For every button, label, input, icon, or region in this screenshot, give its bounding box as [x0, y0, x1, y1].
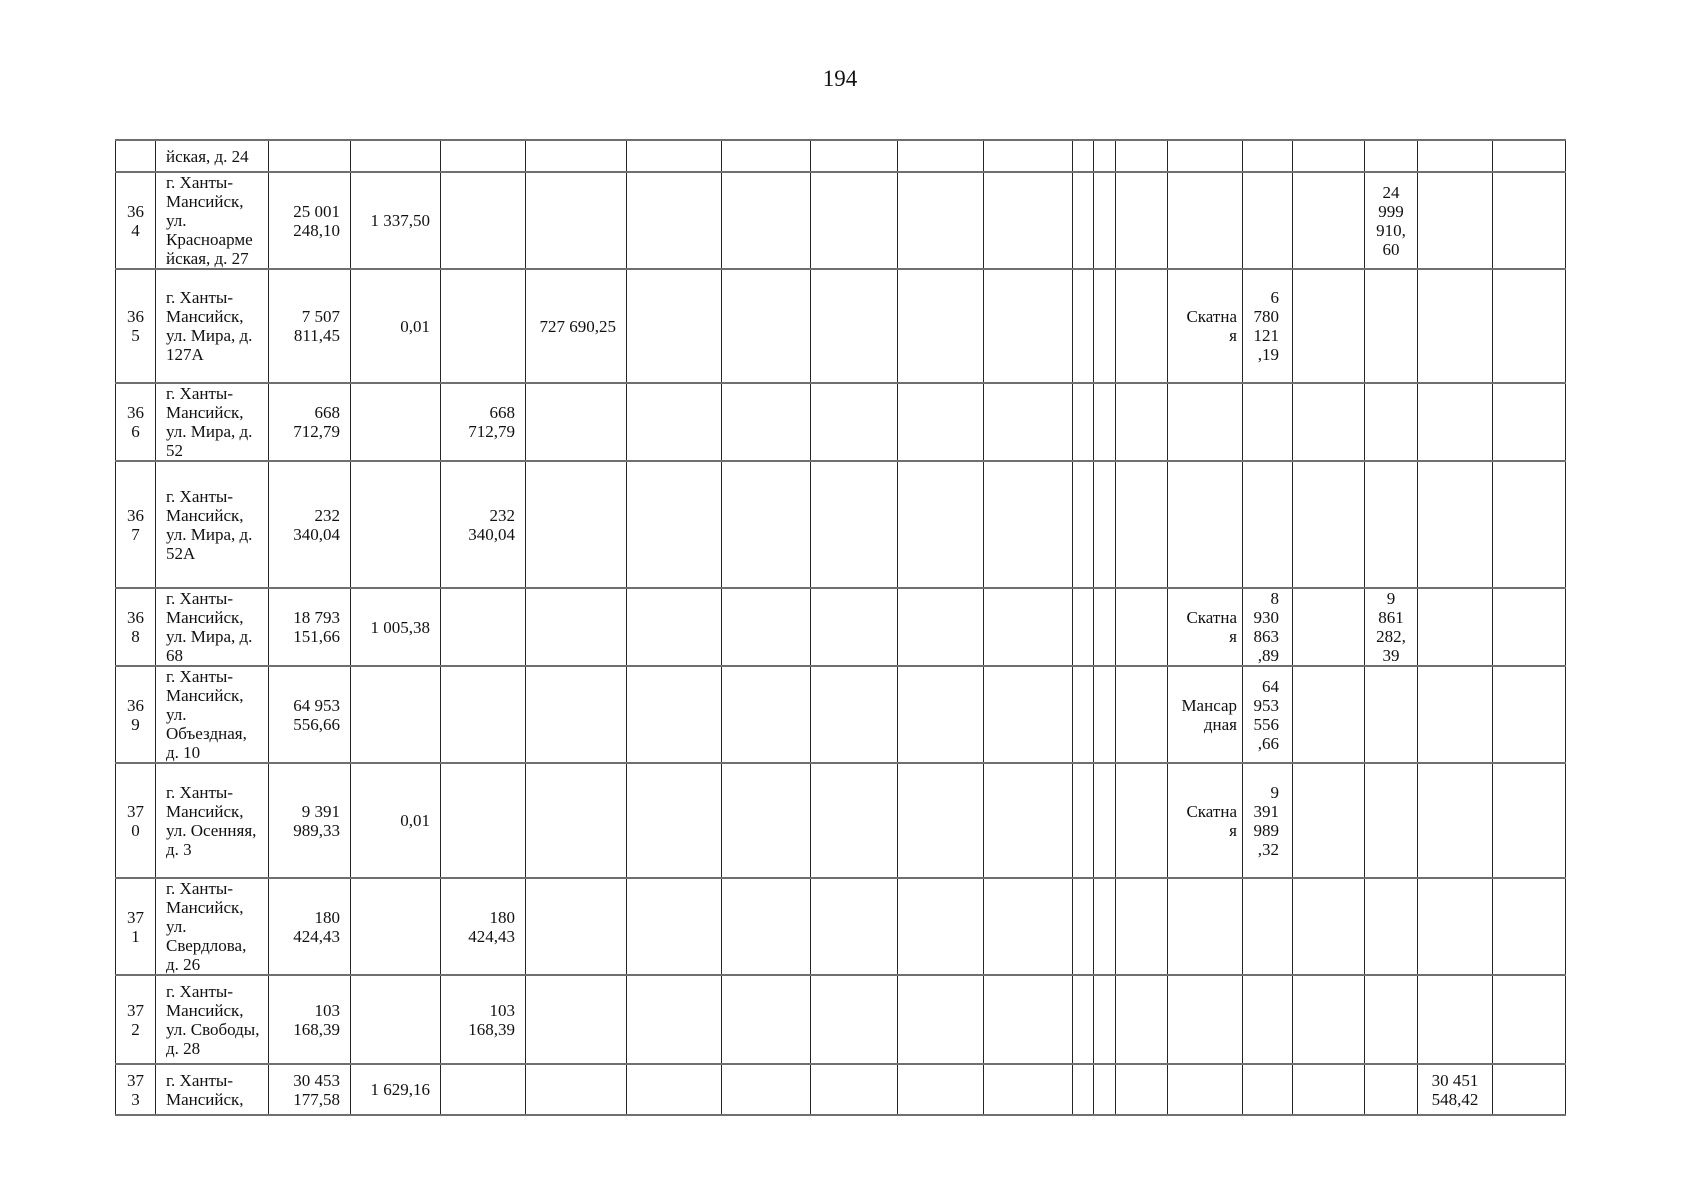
table-cell — [984, 172, 1073, 269]
table-cell — [1073, 878, 1094, 975]
table-cell — [1094, 588, 1116, 666]
table-cell — [1493, 588, 1566, 666]
table-cell — [1094, 763, 1116, 878]
table-cell: 30 453 177,58 — [269, 1064, 351, 1115]
table-cell: 36 6 — [116, 383, 156, 461]
table-cell — [526, 588, 627, 666]
table-cell — [1293, 878, 1365, 975]
table-cell: 180 424,43 — [269, 878, 351, 975]
table-cell — [1094, 383, 1116, 461]
table-cell — [811, 878, 898, 975]
table-cell — [898, 975, 984, 1064]
table-cell: 24 999 910, 60 — [1365, 172, 1418, 269]
table-cell — [1365, 878, 1418, 975]
table-cell — [1243, 461, 1293, 588]
table-cell: 0,01 — [351, 269, 441, 383]
table-cell — [722, 172, 811, 269]
data-table: йская, д. 2436 4г. Ханты- Мансийск, ул. … — [115, 139, 1566, 1116]
table-cell — [984, 763, 1073, 878]
table-cell — [627, 1064, 722, 1115]
table-cell — [269, 140, 351, 172]
table-cell — [441, 140, 526, 172]
table-cell: 36 7 — [116, 461, 156, 588]
table-cell — [441, 763, 526, 878]
table-cell — [811, 172, 898, 269]
table-cell — [722, 140, 811, 172]
table-cell — [722, 763, 811, 878]
table-cell — [1168, 383, 1243, 461]
table-cell — [722, 878, 811, 975]
table-cell — [441, 1064, 526, 1115]
table-cell: 18 793 151,66 — [269, 588, 351, 666]
table-cell — [1168, 172, 1243, 269]
table-cell — [811, 763, 898, 878]
table-cell — [1293, 975, 1365, 1064]
table-cell: 36 8 — [116, 588, 156, 666]
table-cell — [811, 975, 898, 1064]
table-cell — [1365, 269, 1418, 383]
table-cell: 37 1 — [116, 878, 156, 975]
table-cell: 668 712,79 — [269, 383, 351, 461]
table-cell — [526, 878, 627, 975]
table-cell — [898, 763, 984, 878]
table-cell — [1418, 763, 1493, 878]
table-cell — [1493, 975, 1566, 1064]
table-cell — [1493, 461, 1566, 588]
table-cell: Скатна я — [1168, 269, 1243, 383]
table-cell — [1073, 763, 1094, 878]
table-cell — [984, 975, 1073, 1064]
table-cell — [1073, 975, 1094, 1064]
table-cell — [1168, 461, 1243, 588]
table-cell — [1365, 383, 1418, 461]
table-cell: 9 391 989 ,32 — [1243, 763, 1293, 878]
table-cell — [898, 172, 984, 269]
table-cell — [1094, 269, 1116, 383]
table-cell: г. Ханты- Мансийск, ул. Красноарме йская… — [156, 172, 269, 269]
table-row: 36 7г. Ханты- Мансийск, ул. Мира, д. 52А… — [116, 461, 1566, 588]
table-cell — [1116, 666, 1168, 763]
table-cell: г. Ханты- Мансийск, ул. Мира, д. 52 — [156, 383, 269, 461]
table-cell — [526, 383, 627, 461]
table-cell — [898, 1064, 984, 1115]
table-cell: 180 424,43 — [441, 878, 526, 975]
table-cell — [898, 140, 984, 172]
table-cell — [1116, 140, 1168, 172]
table-cell — [722, 1064, 811, 1115]
table-cell — [1418, 140, 1493, 172]
table-cell — [898, 461, 984, 588]
table-cell — [441, 666, 526, 763]
table-cell — [1116, 269, 1168, 383]
table-cell: 37 3 — [116, 1064, 156, 1115]
table-cell — [627, 461, 722, 588]
table-cell: г. Ханты- Мансийск, — [156, 1064, 269, 1115]
table-cell — [1243, 1064, 1293, 1115]
table-row: йская, д. 24 — [116, 140, 1566, 172]
table-cell — [1073, 666, 1094, 763]
table-cell: 232 340,04 — [269, 461, 351, 588]
table-row: 37 3г. Ханты- Мансийск,30 453 177,581 62… — [116, 1064, 1566, 1115]
table-cell — [1094, 461, 1116, 588]
table-cell — [351, 878, 441, 975]
table-cell — [1293, 461, 1365, 588]
table-cell — [722, 588, 811, 666]
table-cell — [898, 588, 984, 666]
table-cell — [1418, 172, 1493, 269]
table-cell — [898, 878, 984, 975]
table-cell: 668 712,79 — [441, 383, 526, 461]
table-cell — [1293, 383, 1365, 461]
table-cell — [627, 975, 722, 1064]
table-cell — [1293, 172, 1365, 269]
table-cell — [1293, 1064, 1365, 1115]
document-page: 194 йская, д. 2436 4г. Ханты- Мансийск, … — [0, 0, 1697, 1200]
table-cell — [1116, 588, 1168, 666]
table-cell — [984, 383, 1073, 461]
table-cell: 64 953 556 ,66 — [1243, 666, 1293, 763]
table-cell — [526, 975, 627, 1064]
table-cell — [1418, 588, 1493, 666]
table-cell — [1243, 975, 1293, 1064]
page-number: 194 — [115, 66, 1565, 92]
table-row: 36 8г. Ханты- Мансийск, ул. Мира, д. 681… — [116, 588, 1566, 666]
table-cell — [1243, 878, 1293, 975]
table-cell — [1365, 975, 1418, 1064]
table-cell — [1493, 269, 1566, 383]
table-cell — [1418, 461, 1493, 588]
table-cell — [1365, 666, 1418, 763]
table-cell: г. Ханты- Мансийск, ул. Мира, д. 127А — [156, 269, 269, 383]
table-cell — [1073, 140, 1094, 172]
table-cell — [627, 588, 722, 666]
table-cell: 103 168,39 — [441, 975, 526, 1064]
table-cell: 1 337,50 — [351, 172, 441, 269]
table-cell: Мансар дная — [1168, 666, 1243, 763]
table-cell — [811, 666, 898, 763]
table-cell — [1168, 140, 1243, 172]
table-cell — [1094, 666, 1116, 763]
table-cell — [627, 763, 722, 878]
table-cell: 37 0 — [116, 763, 156, 878]
table-cell: 6 780 121 ,19 — [1243, 269, 1293, 383]
table-cell — [627, 269, 722, 383]
table-cell — [627, 140, 722, 172]
table-cell: 36 5 — [116, 269, 156, 383]
table-row: 36 4г. Ханты- Мансийск, ул. Красноарме й… — [116, 172, 1566, 269]
table-cell: 8 930 863 ,89 — [1243, 588, 1293, 666]
table-cell — [1073, 269, 1094, 383]
table-cell — [1073, 461, 1094, 588]
table-cell: 9 391 989,33 — [269, 763, 351, 878]
table-cell — [1073, 172, 1094, 269]
table-cell — [1293, 588, 1365, 666]
table-cell — [627, 878, 722, 975]
table-cell: 9 861 282, 39 — [1365, 588, 1418, 666]
table-cell: 25 001 248,10 — [269, 172, 351, 269]
table-cell — [1493, 383, 1566, 461]
table-cell — [116, 140, 156, 172]
table-cell — [811, 140, 898, 172]
table-cell — [1293, 269, 1365, 383]
table-cell: 36 9 — [116, 666, 156, 763]
table-cell: 37 2 — [116, 975, 156, 1064]
table-cell — [526, 140, 627, 172]
table-cell — [984, 140, 1073, 172]
table-cell — [1116, 172, 1168, 269]
table-row: 37 0г. Ханты- Мансийск, ул. Осенняя, д. … — [116, 763, 1566, 878]
table-cell — [898, 666, 984, 763]
table-cell — [1293, 666, 1365, 763]
table-cell — [1418, 975, 1493, 1064]
table-cell — [984, 588, 1073, 666]
table-row: 36 6г. Ханты- Мансийск, ул. Мира, д. 526… — [116, 383, 1566, 461]
table-cell — [627, 666, 722, 763]
table-cell: 64 953 556,66 — [269, 666, 351, 763]
table-cell — [722, 269, 811, 383]
table-cell: 30 451 548,42 — [1418, 1064, 1493, 1115]
table-cell — [984, 269, 1073, 383]
table-cell — [898, 383, 984, 461]
table-cell — [1493, 763, 1566, 878]
table-cell: йская, д. 24 — [156, 140, 269, 172]
table-cell: 103 168,39 — [269, 975, 351, 1064]
table-cell — [1418, 878, 1493, 975]
table-cell — [1094, 172, 1116, 269]
table-cell — [1073, 383, 1094, 461]
table-cell — [1116, 383, 1168, 461]
table-cell — [722, 383, 811, 461]
table-cell — [1418, 269, 1493, 383]
table-cell — [1365, 461, 1418, 588]
table-cell — [722, 666, 811, 763]
table-cell — [441, 588, 526, 666]
table-cell: 727 690,25 — [526, 269, 627, 383]
table-cell — [351, 461, 441, 588]
table-cell — [1493, 666, 1566, 763]
table-cell — [1094, 140, 1116, 172]
table-cell — [441, 269, 526, 383]
table-cell — [811, 1064, 898, 1115]
table-cell — [1293, 140, 1365, 172]
table-cell — [526, 763, 627, 878]
table-cell: г. Ханты- Мансийск, ул. Объездная, д. 10 — [156, 666, 269, 763]
table-row: 36 9г. Ханты- Мансийск, ул. Объездная, д… — [116, 666, 1566, 763]
table-cell — [1116, 878, 1168, 975]
table-cell — [1418, 383, 1493, 461]
table-cell: г. Ханты- Мансийск, ул. Мира, д. 68 — [156, 588, 269, 666]
table-cell — [722, 975, 811, 1064]
table-cell: г. Ханты- Мансийск, ул. Мира, д. 52А — [156, 461, 269, 588]
table-cell — [1073, 1064, 1094, 1115]
table-cell — [1168, 1064, 1243, 1115]
table-cell: 7 507 811,45 — [269, 269, 351, 383]
table-cell — [526, 461, 627, 588]
table-body: йская, д. 2436 4г. Ханты- Мансийск, ул. … — [116, 140, 1566, 1115]
table-cell — [1168, 878, 1243, 975]
table-cell: 1 005,38 — [351, 588, 441, 666]
table-cell — [1493, 140, 1566, 172]
table-cell — [811, 269, 898, 383]
table-cell — [1094, 975, 1116, 1064]
table-cell — [898, 269, 984, 383]
table-cell: Скатна я — [1168, 588, 1243, 666]
table-cell — [1116, 763, 1168, 878]
table-cell: г. Ханты- Мансийск, ул. Осенняя, д. 3 — [156, 763, 269, 878]
table-cell — [1116, 1064, 1168, 1115]
table-cell — [526, 172, 627, 269]
table-cell — [1365, 763, 1418, 878]
table-cell — [1073, 588, 1094, 666]
table-cell — [1243, 172, 1293, 269]
table-cell — [1493, 1064, 1566, 1115]
table-row: 37 1г. Ханты- Мансийск, ул. Свердлова, д… — [116, 878, 1566, 975]
table-cell: г. Ханты- Мансийск, ул. Свободы, д. 28 — [156, 975, 269, 1064]
table-cell — [1168, 975, 1243, 1064]
table-cell — [1365, 1064, 1418, 1115]
table-cell — [1293, 763, 1365, 878]
table-cell — [811, 383, 898, 461]
table-cell — [1094, 878, 1116, 975]
table-cell — [627, 172, 722, 269]
table-cell — [1094, 1064, 1116, 1115]
table-cell: Скатна я — [1168, 763, 1243, 878]
table-cell — [1493, 878, 1566, 975]
table-cell — [811, 461, 898, 588]
table-cell — [1418, 666, 1493, 763]
table-cell: 232 340,04 — [441, 461, 526, 588]
table-cell — [526, 666, 627, 763]
table-cell — [1243, 140, 1293, 172]
table-cell — [984, 666, 1073, 763]
table-cell — [1116, 461, 1168, 588]
table-cell — [984, 1064, 1073, 1115]
table-cell — [811, 588, 898, 666]
table-row: 36 5г. Ханты- Мансийск, ул. Мира, д. 127… — [116, 269, 1566, 383]
table-cell: 36 4 — [116, 172, 156, 269]
table-cell — [526, 1064, 627, 1115]
table-cell — [1365, 140, 1418, 172]
table-cell — [351, 975, 441, 1064]
table-cell — [351, 666, 441, 763]
table-row: 37 2г. Ханты- Мансийск, ул. Свободы, д. … — [116, 975, 1566, 1064]
table-cell — [351, 140, 441, 172]
table-cell — [627, 383, 722, 461]
table-cell — [984, 461, 1073, 588]
table-cell — [1493, 172, 1566, 269]
table-cell — [351, 383, 441, 461]
table-cell — [441, 172, 526, 269]
table-cell: г. Ханты- Мансийск, ул. Свердлова, д. 26 — [156, 878, 269, 975]
table-cell — [722, 461, 811, 588]
table-cell — [1116, 975, 1168, 1064]
table-cell: 0,01 — [351, 763, 441, 878]
table-cell — [984, 878, 1073, 975]
table-cell — [1243, 383, 1293, 461]
table-cell: 1 629,16 — [351, 1064, 441, 1115]
